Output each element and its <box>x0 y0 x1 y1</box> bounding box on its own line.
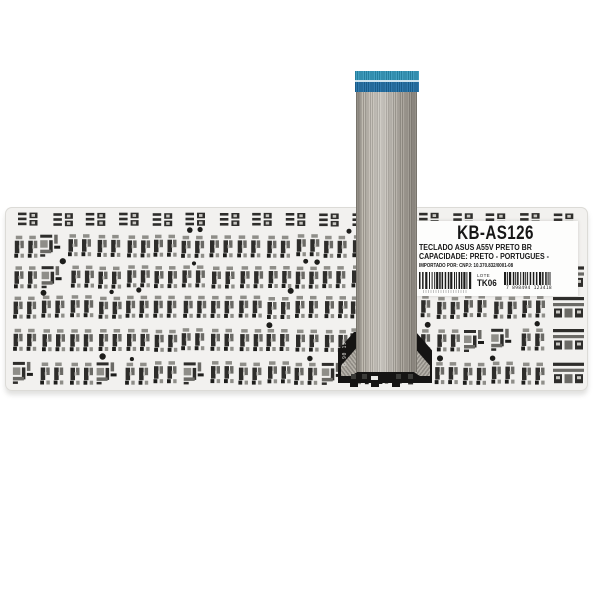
connector-slot <box>371 376 378 380</box>
connector-tab <box>392 383 400 387</box>
connector-tab <box>371 383 379 387</box>
connector-contact <box>408 374 413 379</box>
barcode-right <box>504 272 554 285</box>
product-photo: KB-AS126 TECLADO ASUS A55V PRETO BR CAPA… <box>0 0 600 600</box>
barcode-left-digits <box>423 290 467 293</box>
connector-marking: B 90 19 <box>343 342 348 366</box>
ribbon-cable <box>356 91 417 372</box>
connector-contact <box>362 374 367 379</box>
barcode-right-digits: 7 898494 123418 <box>502 286 556 291</box>
label-capacity-line: CAPACIDADE: PRETO - PORTUGUES - <box>419 252 549 261</box>
label-importer-line: IMPORTADO POR: CNPJ: 10.370.832/0001-08 <box>419 263 513 269</box>
connector-tab <box>350 383 358 387</box>
connector-contact <box>351 374 356 379</box>
label-description-line: TECLADO ASUS A55V PRETO BR <box>419 243 532 252</box>
product-label: KB-AS126 TECLADO ASUS A55V PRETO BR CAPA… <box>417 221 578 296</box>
barcode-left <box>419 272 474 289</box>
model-number: KB-AS126 <box>433 223 559 245</box>
lot-value: TK06 <box>477 278 497 289</box>
connector-contact <box>396 374 401 379</box>
cable-tip-upper-band <box>355 71 419 80</box>
cable-stiffener-tip <box>355 71 419 92</box>
cable-tip-lower-band <box>355 82 419 92</box>
